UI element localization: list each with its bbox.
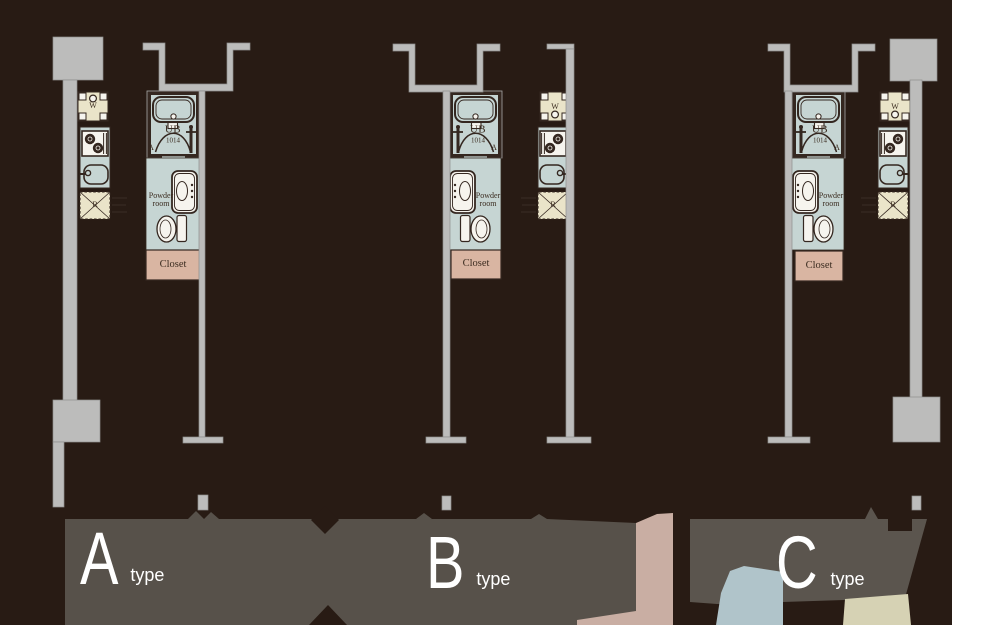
bath-door-letter: A <box>148 144 154 152</box>
bath-size: 1014 <box>813 138 827 145</box>
type-letter: B <box>426 535 465 590</box>
fridge-label: R <box>550 201 555 209</box>
white-strip <box>952 0 1000 625</box>
entry-marker-a <box>198 495 208 510</box>
washer-label: W <box>891 103 899 111</box>
fridge-label: R <box>92 201 97 209</box>
washer-label: W <box>89 102 97 110</box>
plan-c-title: C type <box>776 535 864 590</box>
bath-door-letter: A <box>834 144 840 152</box>
plan-a-title: A type <box>80 531 164 586</box>
closet-label: Closet <box>806 261 833 272</box>
bath-label: UB <box>470 125 486 136</box>
type-word: type <box>130 566 164 584</box>
type-letter: C <box>776 535 818 590</box>
entry-marker-b <box>442 496 451 510</box>
type-letter: A <box>80 531 119 586</box>
closet-label: Closet <box>160 260 187 271</box>
entry-marker-c <box>912 496 921 510</box>
fridge-label: R <box>890 201 895 209</box>
bath-label: UB <box>165 125 181 136</box>
bath-label: UB <box>812 125 828 136</box>
bath-size: 1014 <box>471 138 485 145</box>
powder-room-label: room <box>480 200 497 208</box>
floor-plan-sheet: W R UB 1014 A Powder room Closet A type … <box>0 0 1000 625</box>
powder-room-label: room <box>153 200 170 208</box>
plan-a-rooms <box>78 91 200 280</box>
bath-size: 1014 <box>166 138 180 145</box>
type-word: type <box>476 570 510 588</box>
plan-c-rooms <box>790 91 910 281</box>
type-word: type <box>830 570 864 588</box>
powder-room-label: room <box>823 200 840 208</box>
black-notch <box>888 519 912 531</box>
closet-label: Closet <box>463 259 490 270</box>
beige-patch <box>843 594 911 625</box>
plan-b-title: B type <box>426 535 510 590</box>
bath-door-letter: A <box>491 144 497 152</box>
plan-b-rooms <box>447 91 570 279</box>
washer-label: W <box>551 103 559 111</box>
